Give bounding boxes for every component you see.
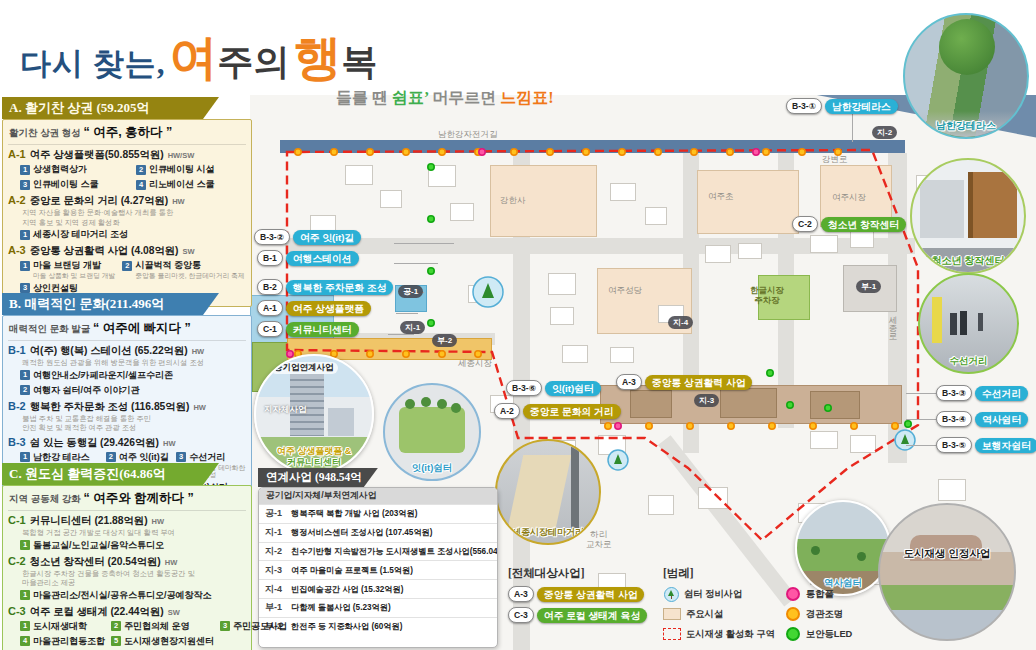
linked-project-row: 지-3여주 마을미술 프로젝트 (1.5억원)	[259, 560, 497, 579]
map-label-prefix: B-2	[257, 279, 283, 295]
project-entry-head: B-2행복한 주차문화 조성 (116.85억원)HW	[8, 400, 246, 414]
project-desc: 안전 확보 및 쾌적한 여주 관광 조성	[22, 424, 246, 433]
inset-youth-center: 청소년 창작센터	[910, 158, 1026, 274]
project-subitem-row: 5도시재생현장지원센터	[111, 635, 214, 648]
subitem-label: 마을 브랜딩 개발	[33, 259, 101, 272]
map-label-text: 남한강테라스	[825, 99, 898, 114]
map-label-text: 잇(it)쉼터	[545, 381, 601, 396]
project-subitem-row: 1마을관리소/전시실/공유스튜디오/공예창작소	[20, 589, 246, 602]
map-label-prefix: A-2	[494, 403, 520, 419]
building	[705, 245, 731, 263]
poster-yeoju-urban-regeneration: 남한강 남한강자전거길 강변로 여주초 여주시장 강한사 여주성당 한글시장 주…	[0, 0, 1036, 650]
project-subitem-row: 1마을 브랜딩 개발	[20, 259, 116, 272]
title-accent-2: 행	[294, 31, 342, 84]
project-subitems: 1도시재생대학2주민협의체 운영3주민공모사업4마을관리협동조합5도시재생현장지…	[20, 620, 246, 648]
building	[698, 487, 728, 509]
leader-line	[394, 243, 454, 244]
project-subitem: 1도시재생대학	[20, 620, 105, 633]
subitem-label: 주민협의체 운영	[124, 620, 190, 633]
legend-item: 도시재생 활성화 구역	[663, 624, 775, 644]
green-dot-icon	[785, 627, 801, 641]
project-entry-head: A-1여주 상생플랫폼(50.855억원)HW/SW	[8, 148, 246, 162]
project-type-tag: SW	[182, 247, 194, 256]
project-subitem: 1세종시장 테마거리 조성	[20, 228, 246, 241]
subitem-number: 2	[20, 385, 30, 395]
subtitle-part-orange: 느낌표!	[500, 89, 553, 106]
building	[850, 435, 876, 453]
project-entry-head: C-2청소년 창작센터 (20.54억원)HW	[8, 555, 246, 569]
subitem-number: 1	[20, 452, 30, 462]
subitem-label: 세종시장 테마거리 조성	[33, 228, 128, 241]
map-label-text: 역사쉼터	[975, 412, 1028, 427]
linked-project-label: 한전주 등 지중화사업 (60억원)	[291, 621, 402, 632]
building	[380, 190, 402, 208]
inset-suseon-street: 수선거리	[918, 273, 1019, 374]
inset-photo	[437, 399, 447, 409]
subitem-number: 2	[122, 261, 132, 271]
project-entry-head: C-3여주 로컬 생태계 (22.44억원)SW	[8, 605, 246, 619]
subitem-label: 리노베이션 스쿨	[149, 178, 215, 191]
project-type-tag: SW	[168, 608, 180, 617]
district-icon	[663, 628, 681, 640]
title-part-1: 주의	[218, 42, 290, 82]
project-entry: A-1여주 상생플랫폼(50.855억원)HW/SW1상생협력상가2인큐베이팅 …	[8, 148, 246, 191]
panel-a-tagline: 활기찬 상권 형성 “ 여주, 흥하다 ”	[8, 122, 246, 145]
project-type-tag: HW/SW	[168, 151, 195, 160]
tagline-label: 활기찬 상권 형성	[9, 127, 81, 138]
project-subitem-row: 1상생협력상가	[20, 163, 130, 176]
map-label-parking-culture: B-2 행복한 주차문화 조성	[257, 279, 393, 295]
subitem-number: 1	[20, 540, 30, 550]
map-text-cathedral: 여주성당	[608, 286, 642, 296]
inset-it-shelter: 잇(it)쉼터	[383, 383, 481, 481]
project-subitem: 2시끌벅적 중앙통중앙통 플리마켓, 한글테마거리 축제	[122, 259, 246, 280]
inset-photo	[968, 172, 1017, 238]
project-entry: C-3여주 로컬 생태계 (22.44억원)SW1도시재생대학2주민협의체 운영…	[8, 605, 246, 648]
subitem-number: 3	[220, 621, 230, 631]
project-subitems: 1상생협력상가2인큐베이팅 시설3인큐베이팅 스쿨4리노베이션 스쿨	[20, 163, 246, 191]
inset-photo	[811, 546, 820, 555]
leader-line	[394, 263, 438, 264]
pink-dot-icon	[785, 587, 801, 601]
subitem-label: 시끌벅적 중앙통	[135, 259, 201, 272]
zone-tag-ji3: 지-3	[694, 394, 719, 407]
inset-injeong-project: 도시재생 인정사업	[878, 503, 1016, 641]
project-code: A-1	[8, 148, 26, 160]
map-dot	[428, 268, 434, 274]
project-desc: 지역 홍보 및 지역 경제 활성화	[22, 219, 246, 228]
project-subitem-row: 1돌봄교실/노인교실/음악스튜디오	[20, 539, 246, 552]
map-label-prefix: C-1	[257, 321, 283, 337]
map-dot	[428, 216, 434, 222]
linked-project-label: 행정서비스센터 조성사업 (107.45억원)	[291, 527, 432, 538]
map-label-prefix: A-3	[616, 374, 642, 390]
project-entry: C-2청소년 창작센터 (20.54억원)HW한글시장 주차장 건물을 증축하여…	[8, 555, 246, 602]
legend-label: 쉼터 정비사업	[684, 588, 742, 601]
linked-project-label: 빈집예술공간 사업 (15.32억원)	[291, 584, 403, 595]
subitem-number: 1	[20, 590, 30, 600]
map-label-text: 중앙통 상권활력 사업	[645, 375, 753, 390]
leader-line	[906, 393, 936, 394]
subitem-number: 1	[20, 165, 30, 175]
legend-item: 보안등LED	[785, 624, 853, 644]
project-title: 행복한 주차문화 조성 (116.85억원)	[30, 400, 190, 414]
tagline-label: 매력적인 문화 발굴	[9, 323, 90, 334]
project-subitem: 1상생협력상가	[20, 163, 130, 176]
project-code: B-1	[8, 344, 26, 356]
panel-c-body: 지역 공동체 강화 “ 여주와 함께하다 ” C-1커뮤니티센터 (21.88억…	[2, 485, 252, 650]
building	[548, 273, 576, 295]
building	[550, 307, 574, 325]
project-subitem: 2여행자 쉼터/여주 이야기관	[20, 384, 246, 397]
project-title: 커뮤니티센터 (21.88억원)	[30, 514, 148, 528]
project-subitem: 2인큐베이팅 시설	[136, 163, 246, 176]
linked-project-code: 지-3	[265, 564, 287, 577]
project-subitem-row: 3수선거리	[176, 451, 246, 464]
map-label-prefix: A-1	[257, 300, 283, 316]
target-all-projects: [전체대상사업] A-3 중앙통 상권활력 사업 C-3 여주 로컬 생태계 육…	[508, 566, 647, 623]
building	[598, 435, 626, 455]
legend-item: 주요시설	[663, 604, 775, 624]
project-subitem-row: 2인큐베이팅 시설	[136, 163, 246, 176]
title-prefix: 다시 찾는,	[20, 46, 166, 81]
project-subitem-row: 1여행안내소/카페라운지/셀프수리존	[20, 369, 246, 382]
project-code: A-2	[8, 194, 26, 206]
panel-c-vitality: C. 원도심 활력증진(64.86억 지역 공동체 강화 “ 여주와 함께하다 …	[2, 463, 252, 650]
linked-project-label: 다함께 돌봄사업 (5.23억원)	[291, 602, 391, 613]
project-code: C-3	[8, 605, 26, 617]
project-entry: B-1여(주) 행(복) 스테이션 (65.22억원)HW쾌적한 원도심 관광을…	[8, 344, 246, 397]
subitem-number: 5	[111, 636, 121, 646]
map-label-text: 여주 잇(it)길	[293, 230, 361, 245]
project-desc: 한글시장 주차장 건물을 증축하여 청소년 활동공간 및	[22, 570, 246, 579]
project-title: 중앙로 문화의 거리 (4.27억원)	[30, 194, 168, 208]
project-type-tag: HW	[172, 197, 185, 206]
project-subitem: 3인큐베이팅 스쿨	[20, 178, 130, 191]
legend-left-column: 쉼터 정비사업 주요시설 도시재생 활성화 구역	[663, 584, 775, 644]
project-entry-head: B-1여(주) 행(복) 스테이션 (65.22억원)HW	[8, 344, 246, 358]
inset-platform-community: 공기업연계사업 지자체사업 여주 상생플랫폼 & 커뮤니티센터	[254, 354, 374, 474]
inset-photo	[920, 180, 964, 238]
inset-namhangang-terrace: 남한강테라스	[903, 13, 1029, 139]
project-title: 여(주) 행(복) 스테이션 (65.22억원)	[30, 344, 188, 358]
map-label-pedestrian-shelter: B-3-⑤ 보행자쉼터	[936, 437, 1036, 453]
map-text-hangeul-parking: 한글시장 주차장	[750, 286, 784, 305]
target-code: C-3	[508, 607, 534, 623]
title-accent-1: 여	[170, 31, 218, 84]
map-label-prefix: B-3-②	[254, 229, 290, 245]
project-entry: C-1커뮤니티센터 (21.88억원)HW복합형 거점 공간 개발로 대상지 일…	[8, 514, 246, 552]
building	[345, 165, 373, 185]
map-label-youth-center: C-2 청소년 창작센터	[792, 216, 906, 232]
map-label-prefix: B-3-⑥	[506, 380, 542, 396]
panel-a-header: A. 활기찬 상권 (59.205억	[2, 97, 219, 119]
legend-title: [범례]	[663, 566, 873, 581]
project-subitem-row: 2여행자 쉼터/여주 이야기관	[20, 384, 246, 397]
map-text-market: 여주시장	[832, 193, 866, 203]
map-label-yeoju-it-gil: B-3-② 여주 잇(it)길	[254, 229, 361, 245]
leader-line	[906, 419, 936, 420]
subitem-number: 4	[136, 180, 146, 190]
project-entry-head: B-3쉼 있는 동행길 (29.426억원)HW	[8, 436, 246, 450]
project-desc: 마을관리소 제공	[22, 579, 246, 588]
subitem-number: 2	[106, 452, 116, 462]
project-subitem: 2주민협의체 운영	[111, 620, 214, 633]
building	[630, 390, 672, 418]
inset-photo	[328, 408, 354, 436]
map-dot	[428, 320, 434, 326]
inset-overlay-text: 공기업연계사업	[270, 362, 338, 374]
panel-a-commerce: A. 활기찬 상권 (59.205억 활기찬 상권 형성 “ 여주, 흥하다 ”…	[2, 97, 252, 307]
panel-c-header: C. 원도심 활력증진(64.86억	[2, 463, 219, 485]
project-entry: B-2행복한 주차문화 조성 (116.85억원)HW불법 주차 및 교통혼잡 …	[8, 400, 246, 433]
project-code: C-1	[8, 514, 26, 526]
map-label-culture-street: A-2 중앙로 문화의 거리	[494, 403, 621, 419]
zone-tag-ji4: 지-4	[668, 316, 693, 329]
subitem-label: 주민공모사업	[233, 620, 287, 633]
subitem-number: 2	[136, 165, 146, 175]
target-label: 여주 로컬 생태계 육성	[537, 608, 647, 623]
inset-overlay-text: 지자체사업	[264, 404, 307, 416]
inset-photo	[507, 455, 572, 533]
poster-subtitle: 들를 땐 쉼표’ 머무르면 느낌표!	[336, 88, 553, 109]
subitem-number: 3	[176, 452, 186, 462]
map-label-text: 여행스테이션	[286, 251, 359, 266]
project-subitem: 1돌봄교실/노인교실/음악스튜디오	[20, 539, 246, 552]
legend-label: 보안등LED	[806, 628, 853, 641]
subitem-label: 수선거리	[189, 451, 225, 464]
map-label-prefix: B-3-③	[936, 385, 972, 401]
project-subitems: 1여행안내소/카페라운지/셀프수리존2여행자 쉼터/여주 이야기관	[20, 369, 246, 397]
map-label-prefix: B-3-⑤	[936, 437, 972, 453]
project-title: 쉼 있는 동행길 (29.426억원)	[30, 436, 159, 450]
inset-photo	[405, 399, 415, 409]
inset-photo	[960, 311, 967, 335]
project-subitem: 4리노베이션 스쿨	[136, 178, 246, 191]
project-title: 청소년 창작센터 (20.54억원)	[30, 555, 161, 569]
subitem-number: 3	[20, 180, 30, 190]
project-subitem-row: 4마을관리협동조합	[20, 635, 105, 648]
linked-project-row: 부-1다함께 돌봄사업 (5.23억원)	[259, 598, 497, 617]
panel-b-tagline: 매력적인 문화 발굴 “ 여주에 빠지다 ”	[8, 318, 246, 341]
map-label-it-shelter: B-3-⑥ 잇(it)쉼터	[506, 380, 601, 396]
map-label-prefix: B-3-①	[786, 98, 822, 114]
inset-photo	[571, 447, 579, 531]
linked-projects-subheader: 공기업/지자체/부처연계사업	[259, 488, 497, 504]
subitem-number: 4	[20, 636, 30, 646]
legend-item: 쉼터 정비사업	[663, 584, 775, 604]
project-subitem: 1여행안내소/카페라운지/셀프수리존	[20, 369, 246, 382]
subitem-label: 도시재생대학	[33, 620, 87, 633]
map-label-text: 커뮤니티센터	[286, 322, 359, 337]
building	[720, 388, 777, 418]
linked-project-label: 친수기반형 지속발전가능 도시재생벨트 조성사업(556.04억원)	[291, 546, 498, 557]
map-label-prefix: C-2	[792, 216, 818, 232]
subitem-desc: 마을 상품화 및 브랜딩 개발	[33, 272, 116, 280]
project-entry: A-2중앙로 문화의 거리 (4.27억원)HW지역 자산을 활용한 문화·예술…	[8, 194, 246, 241]
project-title: 중앙통 상권활력 사업 (4.08억원)	[30, 244, 179, 258]
map-text-temple: 강한사	[500, 196, 526, 206]
subitem-label: 여주 잇(it)길	[119, 451, 169, 464]
inset-photo	[932, 297, 942, 343]
leader-line	[396, 313, 418, 314]
target-all-item: C-3 여주 로컬 생태계 육성	[508, 607, 647, 623]
project-type-tag: HW	[192, 347, 205, 356]
inset-photo	[421, 397, 431, 407]
panel-a-body: 활기찬 상권 형성 “ 여주, 흥하다 ” A-1여주 상생플랫폼(50.855…	[2, 119, 252, 307]
map-text-gangbyeon-ro: 강변로	[822, 155, 848, 165]
subtitle-part: 머무르면	[432, 89, 496, 106]
linked-project-row: 지-2친수기반형 지속발전가능 도시재생벨트 조성사업(556.04억원)	[259, 542, 497, 561]
building	[468, 285, 492, 303]
project-entry-head: A-2중앙로 문화의 거리 (4.27억원)HW	[8, 194, 246, 208]
map-label-travel-station: B-1 여행스테이션	[257, 250, 359, 266]
map-label-jungangtong: A-3 중앙통 상권활력 사업	[616, 374, 752, 390]
project-subitem-row: 1남한강 테라스	[20, 451, 100, 464]
yellow-dot-icon	[785, 607, 801, 621]
project-code: A-3	[8, 244, 26, 256]
subitem-number: 2	[111, 621, 121, 631]
subitem-label: 도시재생현장지원센터	[124, 635, 214, 648]
project-subitem: 4마을관리협동조합	[20, 635, 105, 648]
subitem-number: 1	[20, 621, 30, 631]
linked-projects-box: 공기업/지자체/부처연계사업 공-1행복주택 복합 개발 사업 (203억원)지…	[258, 487, 498, 648]
project-type-tag: HW	[165, 558, 178, 567]
map-text-hari: 하리 교차로	[586, 530, 612, 549]
legend-right-column: 통합폴 경관조명 보안등LED	[785, 584, 853, 644]
building	[645, 207, 667, 225]
tagline-label: 지역 공동체 강화	[9, 493, 81, 504]
target-label: 중앙통 상권활력 사업	[537, 587, 645, 602]
linked-project-row: 부-2한전주 등 지중화사업 (60억원)	[259, 617, 497, 636]
building	[810, 235, 838, 253]
project-code: B-3	[8, 436, 26, 448]
bike-path-band	[280, 140, 905, 153]
project-subitem-row: 4리노베이션 스쿨	[136, 178, 246, 191]
legend-label: 경관조명	[806, 608, 843, 621]
inset-photo	[950, 313, 957, 335]
map-label-text: 보행자쉼터	[975, 438, 1036, 453]
map-label-history-shelter: B-3-④ 역사쉼터	[936, 411, 1028, 427]
linked-project-label: 행복주택 복합 개발 사업 (203억원)	[291, 508, 417, 519]
project-type-tag: HW	[163, 439, 176, 448]
project-entry-head: C-1커뮤니티센터 (21.88억원)HW	[8, 514, 246, 528]
project-subitem-row: 3인큐베이팅 스쿨	[20, 178, 130, 191]
legend-label: 통합폴	[806, 588, 834, 601]
panel-b-header: B. 매력적인 문화(211.496억	[2, 293, 219, 315]
linked-project-code: 부-1	[265, 601, 287, 614]
linked-project-row: 공-1행복주택 복합 개발 사업 (203억원)	[259, 504, 497, 523]
inset-photo	[399, 407, 465, 453]
project-type-tag: HW	[152, 517, 165, 526]
project-subitem-row: 2주민협의체 운영	[111, 620, 214, 633]
map-text-school: 여주초	[708, 192, 734, 202]
inset-caption: 도시재생 인정사업	[880, 547, 1014, 561]
inset-photo	[939, 19, 995, 75]
title-part-2: 복	[342, 42, 378, 82]
subitem-label: 상생협력상가	[33, 163, 87, 176]
legend-label: 주요시설	[686, 608, 723, 621]
zone-tag-bu2: 부-2	[432, 334, 457, 347]
project-subitem-row: 3주민공모사업	[220, 620, 287, 633]
map-text-bike-path: 남한강자전거길	[438, 130, 498, 140]
building	[428, 165, 456, 187]
target-code: A-3	[508, 586, 534, 602]
map-text-sejong-ro: 세종로	[888, 310, 898, 336]
poster-title: 다시 찾는, 여주의 행복	[20, 26, 378, 90]
facility-icon	[663, 608, 681, 620]
project-desc: 복합형 거점 공간 개발로 대상지 일대 활력 부여	[22, 529, 246, 538]
map-label-suseon-street: B-3-③ 수선거리	[936, 385, 1028, 401]
building	[810, 391, 860, 419]
zone-tag-ji2: 지-2	[872, 126, 897, 139]
subitem-label: 마을관리소/전시실/공유스튜디오/공예창작소	[33, 589, 212, 602]
map-label-text: 행복한 주차문화 조성	[286, 280, 394, 295]
project-title: 여주 로컬 생태계 (22.44억원)	[30, 605, 164, 619]
school-block	[697, 170, 799, 234]
subitem-label: 남한강 테라스	[33, 451, 90, 464]
subitem-number: 1	[20, 370, 30, 380]
inset-photo	[978, 313, 983, 331]
project-subitems: 1세종시장 테마거리 조성	[20, 228, 246, 241]
building	[738, 243, 762, 259]
map-legend: [범례] 쉼터 정비사업 주요시설 도시재생 활성화 구역	[663, 566, 873, 644]
inset-photo	[451, 403, 461, 413]
legend-label: 도시재생 활성화 구역	[686, 628, 775, 641]
leader-line	[388, 334, 414, 335]
project-subitem-row: 1세종시장 테마거리 조성	[20, 228, 246, 241]
linked-project-row: 지-4빈집예술공간 사업 (15.32억원)	[259, 579, 497, 598]
map-label-text: 청소년 창작센터	[821, 217, 906, 232]
subitem-label: 마을관리협동조합	[33, 635, 105, 648]
project-desc: 지역 자산을 활용한 문화·예술행사 개최를 통한	[22, 209, 246, 218]
project-subitem: 5도시재생현장지원센터	[111, 635, 214, 648]
linked-project-label: 여주 마을미술 프로젝트 (1.5억원)	[291, 565, 413, 576]
project-subitem: 1마을 브랜딩 개발마을 상품화 및 브랜딩 개발	[20, 259, 116, 280]
map-text-sejong-market: 세종시장	[458, 359, 492, 369]
subitem-number: 1	[20, 230, 30, 240]
subitem-label: 여행자 쉼터/여주 이야기관	[33, 384, 140, 397]
map-label-text: 중앙로 문화의 거리	[523, 404, 621, 419]
project-desc: 불법 주차 및 교통혼잡 해결을 통한 주민	[22, 415, 246, 424]
target-all-title: [전체대상사업]	[508, 566, 647, 581]
subitem-number: 1	[20, 261, 30, 271]
shelter-icon	[663, 587, 679, 602]
building	[610, 347, 634, 363]
project-subitem-row: 2시끌벅적 중앙통	[122, 259, 246, 272]
legend-item: 경관조명	[785, 604, 853, 624]
subitem-number: 3	[20, 283, 30, 293]
map-label-prefix: B-3-④	[936, 411, 972, 427]
map-label-sangsaeng-platform: A-1 여주 상생플랫폼	[257, 300, 371, 316]
legend-item: 통합폴	[785, 584, 853, 604]
building	[938, 479, 966, 501]
leader-line	[852, 112, 853, 142]
subitem-label: 인큐베이팅 스쿨	[33, 178, 99, 191]
tagline-quote: “ 여주, 흥하다 ”	[83, 125, 172, 139]
subtitle-part: 들를 땐	[336, 89, 388, 106]
building	[450, 203, 474, 221]
panel-c-tagline: 지역 공동체 강화 “ 여주와 함께하다 ”	[8, 488, 246, 511]
project-code: B-2	[8, 400, 26, 412]
map-label-prefix: B-1	[257, 250, 283, 266]
linked-project-code: 공-1	[265, 507, 287, 520]
subitem-label: 돌봄교실/노인교실/음악스튜디오	[33, 539, 164, 552]
inset-photo	[857, 552, 866, 561]
project-subitems: 1돌봄교실/노인교실/음악스튜디오	[20, 539, 246, 552]
leader-line	[906, 445, 936, 446]
project-entry-head: A-3중앙통 상권활력 사업 (4.08억원)SW	[8, 244, 246, 258]
